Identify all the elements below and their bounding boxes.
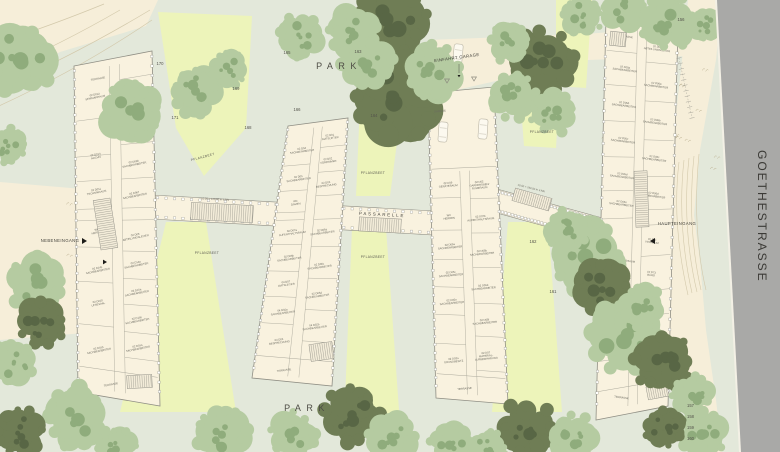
window-tick — [73, 78, 75, 80]
window-tick — [676, 62, 678, 64]
window-tick — [531, 219, 533, 221]
window-tick — [340, 229, 342, 231]
window-tick — [339, 251, 341, 253]
nebeneingang-label: NEBENEINGANG — [41, 238, 80, 243]
window-tick — [500, 262, 502, 264]
window-tick — [427, 212, 429, 214]
window-tick — [259, 319, 261, 321]
window-tick — [497, 185, 499, 187]
window-tick — [76, 263, 78, 265]
window-tick — [284, 149, 286, 151]
window-tick — [603, 110, 605, 112]
park-label: PARK — [284, 403, 330, 413]
window-tick — [268, 258, 270, 260]
window-tick — [500, 245, 502, 247]
window-tick — [345, 143, 347, 145]
window-tick — [670, 257, 672, 259]
window-tick — [674, 124, 676, 126]
window-tick — [75, 219, 77, 221]
window-tick — [287, 129, 289, 131]
window-tick — [333, 338, 335, 340]
window-tick — [550, 205, 552, 207]
window-tick — [534, 220, 536, 222]
window-tick — [431, 253, 433, 255]
window-tick — [604, 66, 606, 68]
window-tick — [154, 209, 156, 211]
window-tick — [496, 159, 498, 161]
window-tick — [601, 186, 603, 188]
window-tick — [77, 369, 79, 371]
window-tick — [267, 265, 269, 267]
window-tick — [671, 226, 673, 228]
window-tick — [76, 281, 78, 283]
plot-number: 164 — [371, 113, 379, 118]
window-tick — [342, 186, 344, 188]
window-tick — [518, 215, 520, 217]
window-tick — [674, 113, 676, 115]
window-tick — [157, 333, 159, 335]
window-tick — [604, 55, 606, 57]
plot-number: 160 — [687, 436, 695, 441]
window-tick — [156, 216, 158, 218]
window-tick — [344, 164, 346, 166]
window-tick — [157, 324, 159, 326]
window-tick — [76, 290, 78, 292]
window-tick — [669, 318, 671, 320]
window-tick — [675, 72, 677, 74]
window-tick — [77, 351, 79, 353]
window-tick — [260, 312, 262, 314]
window-tick — [76, 272, 78, 274]
window-tick — [673, 144, 675, 146]
window-tick — [282, 163, 284, 165]
window-tick — [263, 292, 265, 294]
window-tick — [151, 84, 153, 86]
window-tick — [156, 197, 158, 199]
window-tick — [75, 255, 77, 257]
window-tick — [504, 356, 506, 358]
window-tick — [669, 298, 671, 300]
window-tick — [76, 307, 78, 309]
planting-bed-label: PFLANZBEET — [530, 130, 555, 134]
window-tick — [156, 276, 158, 278]
window-tick — [497, 193, 499, 195]
window-tick — [501, 211, 503, 213]
window-tick — [336, 302, 338, 304]
window-tick — [255, 353, 257, 355]
window-tick — [173, 217, 175, 219]
window-tick — [256, 346, 258, 348]
plot-number: 158 — [687, 414, 695, 419]
window-tick — [432, 294, 434, 296]
window-tick — [341, 215, 343, 217]
window-tick — [343, 226, 345, 228]
window-tick — [256, 340, 258, 342]
window-tick — [429, 146, 431, 148]
window-tick — [74, 167, 76, 169]
window-tick — [433, 319, 435, 321]
window-tick — [346, 135, 348, 137]
window-tick — [604, 77, 606, 79]
window-tick — [601, 175, 603, 177]
window-tick — [600, 207, 602, 209]
window-tick — [266, 203, 268, 205]
plot-number: 163 — [355, 49, 363, 54]
stair-icon — [634, 171, 649, 227]
window-tick — [257, 333, 259, 335]
window-tick — [498, 219, 500, 221]
window-tick — [155, 256, 157, 258]
window-tick — [338, 258, 340, 260]
window-tick — [433, 302, 435, 304]
window-tick — [669, 308, 671, 310]
stair-icon — [191, 202, 254, 222]
window-tick — [675, 83, 677, 85]
window-tick — [73, 70, 75, 72]
window-tick — [75, 175, 77, 177]
window-tick — [155, 266, 157, 268]
window-tick — [672, 195, 674, 197]
window-tick — [279, 183, 281, 185]
window-tick — [153, 151, 155, 153]
window-tick — [670, 287, 672, 289]
window-tick — [672, 216, 674, 218]
window-tick — [344, 157, 346, 159]
window-tick — [331, 374, 333, 376]
window-tick — [341, 208, 343, 210]
window-tick — [501, 270, 503, 272]
window-tick — [494, 116, 496, 118]
window-tick — [74, 123, 76, 125]
window-tick — [669, 328, 671, 330]
window-tick — [435, 376, 437, 378]
plot-number: 157 — [687, 403, 695, 408]
planting-bed-label: PFLANZBEET — [361, 171, 386, 175]
window-tick — [498, 210, 500, 212]
window-tick — [671, 246, 673, 248]
window-tick — [673, 165, 675, 167]
window-tick — [430, 220, 432, 222]
window-tick — [345, 150, 347, 152]
planting-bed-label: PFLANZBEET — [361, 255, 386, 259]
window-tick — [504, 339, 506, 341]
window-tick — [495, 133, 497, 135]
plot-number: 166 — [294, 107, 302, 112]
window-tick — [75, 193, 77, 195]
window-tick — [505, 364, 507, 366]
window-tick — [508, 194, 510, 196]
window-tick — [504, 347, 506, 349]
window-tick — [165, 197, 167, 199]
window-tick — [604, 45, 606, 47]
window-tick — [537, 221, 539, 223]
car-icon — [478, 119, 488, 140]
window-tick — [153, 170, 155, 172]
window-tick — [273, 224, 275, 226]
window-tick — [338, 266, 340, 268]
window-tick — [351, 208, 353, 210]
window-tick — [434, 368, 436, 370]
window-tick — [157, 343, 159, 345]
window-tick — [262, 299, 264, 301]
window-tick — [339, 244, 341, 246]
window-tick — [275, 210, 277, 212]
window-tick — [276, 203, 278, 205]
window-tick — [281, 169, 283, 171]
window-tick — [601, 164, 603, 166]
window-tick — [332, 367, 334, 369]
window-tick — [173, 198, 175, 200]
window-tick — [154, 218, 156, 220]
window-tick — [501, 192, 503, 194]
window-tick — [602, 142, 604, 144]
park-label: PARK — [316, 61, 362, 71]
window-tick — [434, 343, 436, 345]
window-tick — [430, 203, 432, 205]
window-tick — [524, 217, 526, 219]
window-tick — [157, 352, 159, 354]
window-tick — [156, 285, 158, 287]
window-tick — [503, 313, 505, 315]
window-tick — [410, 211, 412, 213]
window-tick — [498, 202, 500, 204]
window-tick — [335, 309, 337, 311]
window-tick — [165, 216, 167, 218]
window-tick — [675, 93, 677, 95]
window-tick — [156, 295, 158, 297]
window-tick — [505, 193, 507, 195]
window-tick — [596, 381, 598, 383]
window-tick — [500, 253, 502, 255]
window-tick — [433, 327, 435, 329]
window-tick — [496, 168, 498, 170]
plot-number: 169 — [233, 86, 241, 91]
window-tick — [285, 142, 287, 144]
window-tick — [429, 179, 431, 181]
window-tick — [190, 198, 192, 200]
window-tick — [432, 261, 434, 263]
stair-icon — [359, 217, 402, 233]
window-tick — [432, 286, 434, 288]
window-tick — [265, 278, 267, 280]
window-tick — [155, 228, 157, 230]
plot-number: 156 — [678, 17, 686, 22]
window-tick — [342, 193, 344, 195]
window-tick — [182, 198, 184, 200]
window-tick — [74, 158, 76, 160]
window-tick — [494, 125, 496, 127]
window-tick — [336, 287, 338, 289]
window-tick — [155, 247, 157, 249]
window-tick — [74, 105, 76, 107]
window-tick — [431, 228, 433, 230]
window-tick — [410, 230, 412, 232]
window-tick — [182, 217, 184, 219]
site-plan: TERRASSE02 D012SEMINARRAUM02 D064SACHBEA… — [0, 0, 780, 452]
window-tick — [506, 382, 508, 384]
plot-number: 171 — [172, 115, 180, 120]
window-tick — [554, 206, 556, 208]
window-tick — [596, 392, 598, 394]
window-tick — [670, 267, 672, 269]
window-tick — [429, 154, 431, 156]
window-tick — [340, 222, 342, 224]
window-tick — [430, 187, 432, 189]
window-tick — [514, 215, 516, 217]
window-tick — [502, 305, 504, 307]
window-tick — [499, 236, 501, 238]
window-tick — [676, 52, 678, 54]
window-tick — [261, 306, 263, 308]
window-tick — [154, 189, 156, 191]
window-tick — [269, 251, 271, 253]
stair-icon — [609, 31, 626, 47]
window-tick — [258, 202, 260, 204]
window-tick — [603, 99, 605, 101]
window-tick — [434, 335, 436, 337]
window-tick — [76, 316, 78, 318]
window-tick — [596, 370, 598, 372]
window-tick — [155, 237, 157, 239]
window-tick — [503, 330, 505, 332]
window-tick — [419, 211, 421, 213]
window-tick — [233, 201, 235, 203]
window-tick — [332, 360, 334, 362]
window-tick — [258, 222, 260, 224]
window-tick — [671, 236, 673, 238]
window-tick — [343, 172, 345, 174]
window-tick — [402, 230, 404, 232]
stair-icon — [309, 341, 334, 361]
window-tick — [250, 202, 252, 204]
window-tick — [74, 114, 76, 116]
window-tick — [419, 231, 421, 233]
window-tick — [75, 228, 77, 230]
window-tick — [158, 391, 160, 393]
window-tick — [74, 149, 76, 151]
window-tick — [335, 316, 337, 318]
window-tick — [334, 331, 336, 333]
window-tick — [76, 325, 78, 327]
window-tick — [673, 154, 675, 156]
window-tick — [431, 236, 433, 238]
window-tick — [271, 237, 273, 239]
plot-number: 165 — [284, 50, 292, 55]
window-tick — [497, 176, 499, 178]
window-tick — [427, 231, 429, 233]
window-tick — [428, 138, 430, 140]
window-tick — [495, 151, 497, 153]
window-tick — [156, 314, 158, 316]
window-tick — [505, 212, 507, 214]
window-tick — [432, 269, 434, 271]
window-tick — [429, 162, 431, 164]
window-tick — [433, 311, 435, 313]
window-tick — [521, 216, 523, 218]
window-tick — [508, 213, 510, 215]
window-tick — [73, 87, 75, 89]
window-tick — [434, 360, 436, 362]
window-tick — [272, 231, 274, 233]
window-tick — [74, 96, 76, 98]
window-tick — [333, 345, 335, 347]
haupteingang-label: HAUPTEINGANG — [658, 221, 696, 226]
window-tick — [253, 367, 255, 369]
window-tick — [672, 185, 674, 187]
window-tick — [596, 403, 598, 405]
window-tick — [75, 246, 77, 248]
window-tick — [429, 171, 431, 173]
window-tick — [346, 121, 348, 123]
window-tick — [158, 371, 160, 373]
window-tick — [258, 326, 260, 328]
window-tick — [74, 131, 76, 133]
window-tick — [151, 55, 153, 57]
window-tick — [527, 218, 529, 220]
window-tick — [153, 141, 155, 143]
window-tick — [76, 299, 78, 301]
window-tick — [503, 322, 505, 324]
plot-number: 162 — [530, 239, 538, 244]
window-tick — [254, 360, 256, 362]
window-tick — [674, 134, 676, 136]
window-tick — [334, 323, 336, 325]
tree — [497, 399, 559, 452]
window-tick — [601, 197, 603, 199]
window-tick — [431, 245, 433, 247]
window-tick — [501, 279, 503, 281]
window-tick — [277, 197, 279, 199]
site-plan-page: TERRASSE02 D012SEMINARRAUM02 D064SACHBEA… — [0, 0, 780, 452]
window-tick — [603, 88, 605, 90]
window-tick — [77, 360, 79, 362]
window-tick — [602, 153, 604, 155]
car-icon — [438, 122, 448, 143]
window-tick — [75, 211, 77, 213]
window-tick — [266, 272, 268, 274]
window-tick — [339, 237, 341, 239]
window-tick — [151, 65, 153, 67]
window-tick — [266, 222, 268, 224]
window-tick — [346, 128, 348, 130]
window-tick — [153, 180, 155, 182]
window-tick — [280, 176, 282, 178]
window-tick — [351, 227, 353, 229]
window-tick — [75, 184, 77, 186]
window-tick — [151, 74, 153, 76]
window-tick — [158, 362, 160, 364]
window-tick — [430, 195, 432, 197]
window-tick — [541, 222, 543, 224]
window-tick — [154, 199, 156, 201]
window-tick — [675, 103, 677, 105]
window-tick — [270, 244, 272, 246]
window-tick — [337, 273, 339, 275]
window-tick — [499, 228, 501, 230]
plot-number: 159 — [687, 425, 695, 430]
window-tick — [602, 131, 604, 133]
window-tick — [430, 212, 432, 214]
plot-number: 170 — [157, 61, 165, 66]
window-tick — [278, 190, 280, 192]
plot-number: 161 — [550, 289, 558, 294]
window-tick — [342, 200, 344, 202]
window-tick — [432, 278, 434, 280]
window-tick — [502, 296, 504, 298]
window-tick — [511, 214, 513, 216]
window-tick — [76, 334, 78, 336]
window-tick — [505, 373, 507, 375]
